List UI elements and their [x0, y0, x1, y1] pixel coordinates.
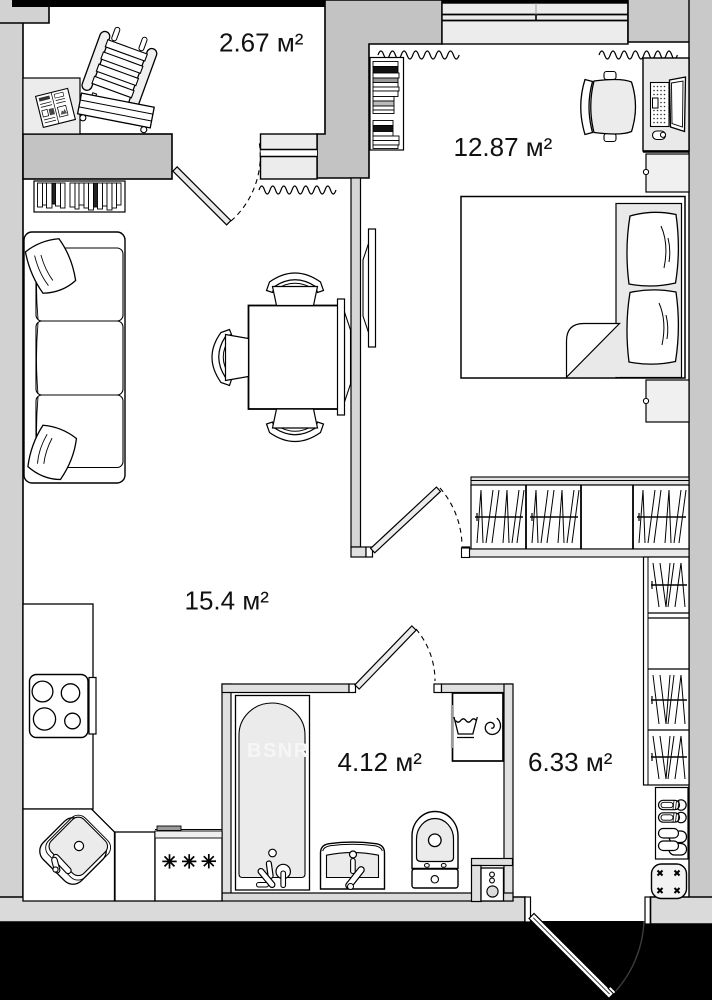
svg-text:2.67 м²: 2.67 м²	[219, 28, 304, 58]
svg-text:4.12 м²: 4.12 м²	[338, 747, 423, 777]
svg-text:BSNR: BSNR	[247, 740, 310, 762]
svg-text:12.87 м²: 12.87 м²	[454, 132, 553, 162]
svg-text:15.4 м²: 15.4 м²	[185, 586, 270, 616]
svg-text:6.33 м²: 6.33 м²	[528, 747, 613, 777]
